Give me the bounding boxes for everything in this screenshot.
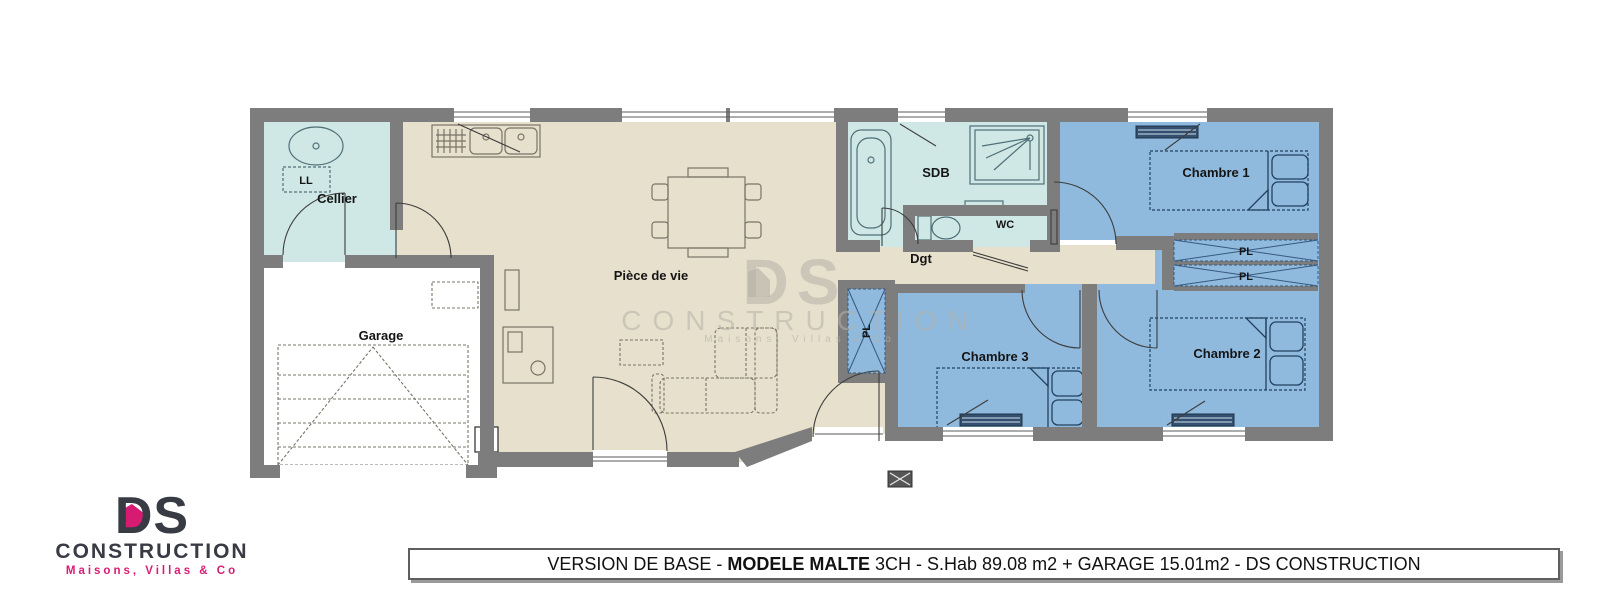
- room-sdb-floor: [842, 115, 1054, 247]
- label-cellier: Cellier: [317, 191, 357, 206]
- label-pl-vertical: PL: [861, 324, 873, 338]
- label-dgt: Dgt: [910, 251, 932, 266]
- label-sdb: SDB: [922, 165, 949, 180]
- banner-details-text: 3CH - S.Hab 89.08 m2 + GARAGE 15.01m2 - …: [870, 554, 1421, 575]
- label-chambre2: Chambre 2: [1193, 346, 1260, 361]
- banner-version-text: VERSION DE BASE -: [547, 554, 727, 575]
- watermark-name: CONSTRUCTION: [621, 305, 979, 336]
- garage-door-opening: [280, 465, 466, 478]
- logo-monogram: DS: [115, 490, 189, 542]
- label-piece-de-vie: Pièce de vie: [614, 268, 688, 283]
- banner-model-name: MODELE MALTE: [727, 554, 870, 575]
- floor-plan-page: DS CONSTRUCTION Maisons, Villas & Co Cel…: [0, 0, 1600, 600]
- logo-tagline: Maisons, Villas & Co: [34, 565, 270, 577]
- room-cellier-floor: [257, 115, 397, 265]
- label-pl-1: PL: [1239, 246, 1253, 258]
- label-pl-2: PL: [1239, 271, 1253, 283]
- company-logo: DS CONSTRUCTION Maisons, Villas & Co: [34, 490, 270, 577]
- label-chambre3: Chambre 3: [961, 349, 1028, 364]
- logo-monogram-text: DS: [115, 487, 189, 545]
- room-garage-floor: [257, 262, 487, 472]
- label-ll: LL: [299, 175, 313, 187]
- section-marker-icon: [888, 471, 912, 487]
- title-banner: VERSION DE BASE - MODELE MALTE 3CH - S.H…: [408, 548, 1560, 580]
- label-garage: Garage: [359, 328, 404, 343]
- label-wc: WC: [996, 219, 1014, 231]
- label-chambre1: Chambre 1: [1182, 165, 1249, 180]
